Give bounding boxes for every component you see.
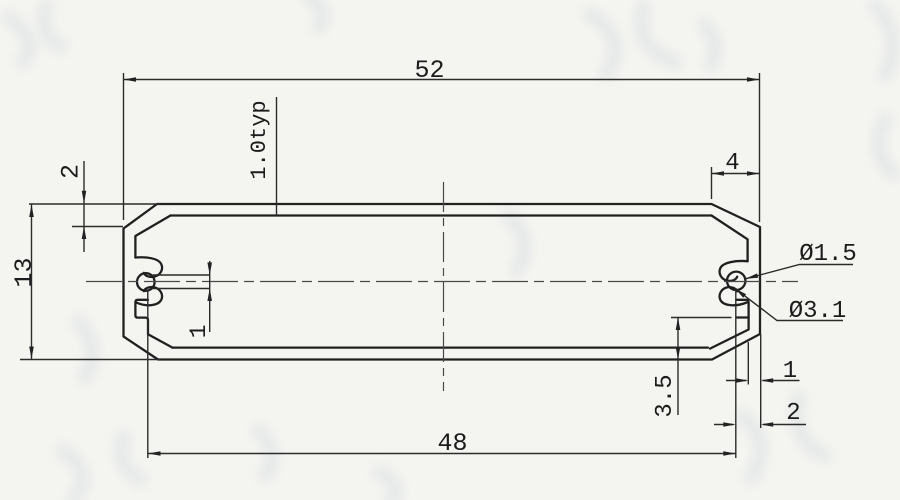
svg-text:2: 2 — [786, 400, 800, 427]
svg-text:1.0typ: 1.0typ — [247, 100, 272, 179]
svg-text:13: 13 — [10, 257, 39, 287]
svg-text:1: 1 — [783, 358, 797, 385]
svg-text:1: 1 — [186, 324, 212, 338]
svg-text:48: 48 — [437, 429, 467, 458]
svg-text:4: 4 — [725, 150, 739, 177]
svg-text:52: 52 — [414, 56, 444, 85]
svg-text:3.5: 3.5 — [652, 374, 679, 417]
svg-text:Ø1.5: Ø1.5 — [799, 241, 857, 268]
svg-text:2: 2 — [57, 164, 86, 179]
svg-text:Ø3.1: Ø3.1 — [789, 298, 847, 325]
